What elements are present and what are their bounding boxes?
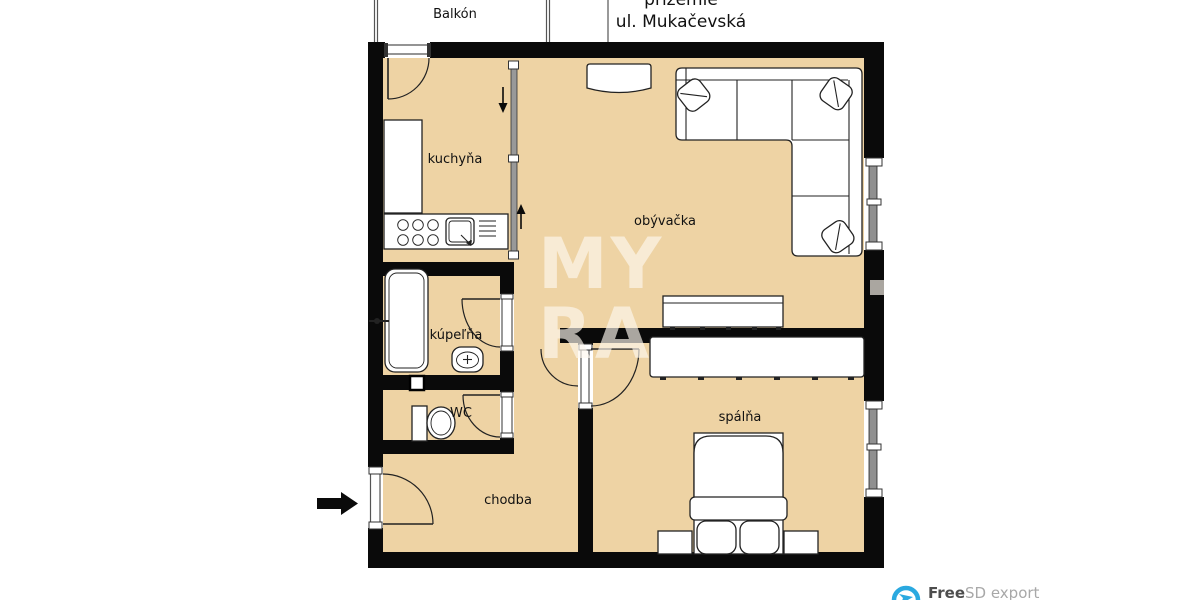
title-street: ul. Mukačevská xyxy=(616,12,746,32)
bathroom-sink xyxy=(452,347,483,372)
double-bed xyxy=(690,433,787,554)
label-obyvacka: obývačka xyxy=(634,214,696,229)
title-floor: prízemie xyxy=(644,0,718,10)
bed-pillow-left xyxy=(697,521,736,554)
wall-top xyxy=(368,42,884,58)
wc-furniture xyxy=(412,406,455,441)
label-kupelna: kúpeľňa xyxy=(430,328,483,343)
label-spalna: spálňa xyxy=(719,410,762,425)
wall-bath-wc xyxy=(374,375,500,390)
brand-text-bold: Free xyxy=(928,584,965,600)
label-chodba: chodba xyxy=(484,493,532,508)
toilet-tank xyxy=(412,406,427,441)
nightstand-left xyxy=(658,531,692,554)
label-wc: WC xyxy=(450,406,472,421)
sideboard xyxy=(663,296,783,330)
tv xyxy=(587,64,651,93)
duct-shaft xyxy=(410,376,424,390)
bed-fold xyxy=(690,497,787,520)
watermark-fragment xyxy=(870,280,884,295)
floorplan-canvas: MY RA Balkón kuchyňa obývačka kúpeľňa WC… xyxy=(0,0,1200,600)
wardrobe xyxy=(650,337,864,380)
fridge-cabinet xyxy=(384,120,422,213)
bed-blanket xyxy=(694,436,783,499)
floorplan-page: MY RA Balkón kuchyňa obývačka kúpeľňa WC… xyxy=(0,0,1200,600)
label-balkon: Balkón xyxy=(433,7,477,22)
nightstand-right xyxy=(784,531,818,554)
label-kuchyna: kuchyňa xyxy=(428,152,483,167)
wall-wc-hall xyxy=(374,440,514,454)
kitchen-sink xyxy=(446,218,474,246)
bathtub xyxy=(385,269,428,372)
watermark-line2: RA xyxy=(538,293,652,375)
bed-pillow-right xyxy=(740,521,779,554)
brand-text-rest: SD export xyxy=(965,584,1040,600)
